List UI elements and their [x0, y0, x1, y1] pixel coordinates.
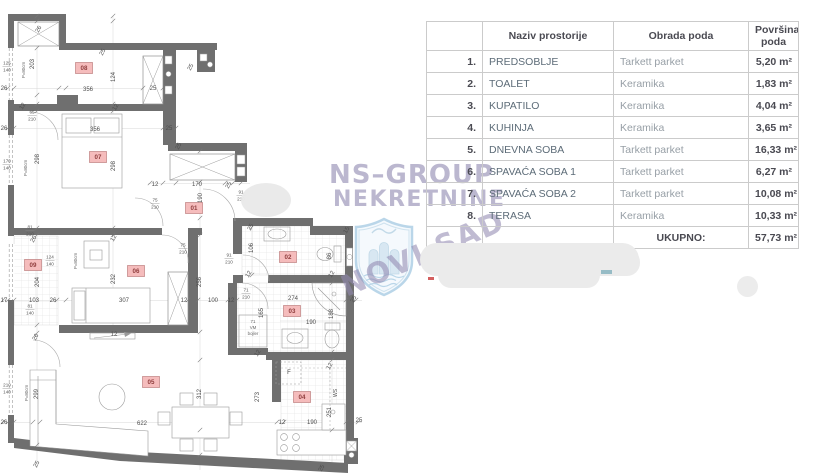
dimension-label: 190	[307, 420, 318, 426]
door-size-numerator: 81	[27, 225, 33, 230]
dimension-label: 203	[30, 58, 36, 69]
floor-finish: Keramika	[614, 95, 749, 117]
col-header-name: Naziv prostorije	[483, 22, 614, 51]
dimension-label: 298	[35, 153, 41, 164]
floor-finish: Tarkett parket	[614, 161, 749, 183]
table-row: 5.DNEVNA SOBATarkett parket16,33 m²	[427, 139, 799, 161]
dimension-label: 190	[198, 192, 204, 203]
redacted-text-fragment	[428, 277, 434, 280]
floor-finish: Tarkett parket	[614, 51, 749, 73]
dimension-label: 170	[192, 182, 203, 188]
dimension-label: 188	[329, 308, 335, 319]
room-name: SPAVAĆA SOBA 1	[483, 161, 614, 183]
room-number-text: 04	[299, 394, 306, 401]
dimension-label: 26	[1, 126, 8, 132]
door-size-denominator: 140	[3, 166, 11, 171]
floor-finish: Keramika	[614, 117, 749, 139]
row-index: 5.	[427, 139, 483, 161]
real-estate-listing: 2620326356124252512122635625298298252512…	[0, 0, 813, 476]
dimension-label: 165	[259, 307, 265, 318]
room-name: DNEVNA SOBA	[483, 139, 614, 161]
dimension-label: 25	[150, 86, 157, 92]
dimension-label: 17	[1, 298, 8, 304]
annotation-label: P=80cm	[23, 160, 28, 177]
dimension-label: 26	[1, 86, 8, 92]
dimension-label: 100	[208, 298, 219, 304]
door-size-numerator: 75	[152, 198, 158, 203]
dimension-label: 12	[111, 332, 118, 338]
door-size-denominator: 140	[3, 390, 11, 395]
room-area: 6,27 m²	[749, 161, 799, 183]
door-size-numerator: 210	[3, 383, 11, 388]
dimension-label: 273	[255, 391, 261, 402]
annotation-label: bojler	[248, 331, 259, 336]
door-size-denominator: 140	[26, 311, 34, 316]
col-header-area-line1: Površina	[755, 24, 799, 36]
dimension-label: 25	[33, 460, 42, 469]
table-row: 4.KUHINJAKeramika3,65 m²	[427, 117, 799, 139]
dimension-label: 26	[1, 420, 8, 426]
door-size-denominator: 210	[28, 117, 36, 122]
dimension-label: 124	[111, 71, 117, 82]
dimension-label: WS	[333, 388, 339, 397]
door-size-denominator: 140	[46, 262, 54, 267]
room-number-text: 06	[133, 268, 140, 275]
door-size-numerator: 71	[243, 288, 249, 293]
row-index: 6.	[427, 161, 483, 183]
room-number-text: 08	[81, 65, 88, 72]
room-area: 10,08 m²	[749, 183, 799, 205]
door-size-numerator: 125	[3, 61, 11, 66]
room-number-text: 03	[289, 308, 296, 315]
door-size-numerator: 81	[27, 304, 33, 309]
dimension-label: 12	[152, 182, 159, 188]
row-index: 4.	[427, 117, 483, 139]
dimension-label: 25	[356, 418, 363, 424]
room-area: 3,65 m²	[749, 117, 799, 139]
door-size-denominator: 210	[151, 205, 159, 210]
table-row: 2.TOALETKeramika1,83 m²	[427, 73, 799, 95]
col-header-floor: Obrada poda	[614, 22, 749, 51]
dimension-label: 307	[119, 298, 130, 304]
annotation-label: P=80cm	[21, 62, 26, 79]
rooms-table: Naziv prostorije Obrada poda Površinapod…	[426, 21, 799, 249]
room-name: KUHINJA	[483, 117, 614, 139]
door-size-denominator: 210	[179, 250, 187, 255]
redaction-blob	[241, 183, 291, 217]
dimension-label: 622	[137, 421, 148, 427]
dimension-label: 312	[197, 388, 203, 399]
dimension-label: 12	[181, 298, 188, 304]
room-number-text: 01	[191, 205, 198, 212]
room-number-text: 09	[30, 262, 37, 269]
room-name: PREDSOBLJE	[483, 51, 614, 73]
room-name: KUPATILO	[483, 95, 614, 117]
floor-finish: Tarkett parket	[614, 139, 749, 161]
floor-finish: Keramika	[614, 73, 749, 95]
room-area: 1,83 m²	[749, 73, 799, 95]
total-label: UKUPNO:	[614, 227, 749, 249]
dimension-label: 25	[187, 63, 196, 72]
dimension-label: 106	[249, 242, 255, 253]
room-number-text: 05	[148, 379, 155, 386]
row-index: 1.	[427, 51, 483, 73]
redaction-blob	[438, 261, 600, 288]
dimension-label: 12	[279, 420, 286, 426]
room-name: SPAVAĆA SOBA 2	[483, 183, 614, 205]
row-index: 2.	[427, 73, 483, 95]
dimension-label: 256	[197, 276, 203, 287]
agency-shield-logo	[352, 216, 416, 298]
room-area: 5,20 m²	[749, 51, 799, 73]
annotation-label: P=80cm	[24, 385, 29, 402]
total-area: 57,73 m²	[749, 227, 799, 249]
row-index: 7.	[427, 183, 483, 205]
table-row: 7.SPAVAĆA SOBA 2Tarkett parket10,08 m²	[427, 183, 799, 205]
dimension-label: 232	[111, 273, 117, 284]
dimension-label: 298	[111, 160, 117, 171]
dimension-label: 25	[166, 126, 173, 132]
dimension-label: 356	[90, 127, 101, 133]
dimension-label: 26	[50, 298, 57, 304]
door-size-numerator: 65	[29, 110, 35, 115]
dimension-label: 204	[35, 276, 41, 287]
annotation-label: P=80cm	[73, 253, 78, 270]
door-size-denominator: 210	[242, 295, 250, 300]
door-size-denominator: 140	[3, 68, 11, 73]
table-row: 8.TERASAKeramika10,33 m²	[427, 205, 799, 227]
table-row: 3.KUPATILOKeramika4,04 m²	[427, 95, 799, 117]
table-row: 1.PREDSOBLJETarkett parket5,20 m²	[427, 51, 799, 73]
room-number-text: 07	[95, 154, 102, 161]
row-index: 8.	[427, 205, 483, 227]
col-header-area-line2: poda	[761, 36, 786, 48]
dimension-label: 12	[228, 298, 235, 304]
room-table-panel: Naziv prostorije Obrada poda Površinapod…	[426, 21, 798, 249]
dimension-label: 274	[288, 296, 299, 302]
annotation-label: 71	[251, 319, 256, 324]
door-size-denominator: 210	[225, 260, 233, 265]
room-number-text: 02	[285, 254, 292, 261]
dimension-label: 299	[34, 388, 40, 399]
redaction-blob-circle	[737, 276, 758, 297]
floor-plan: 2620326356124252512122635625298298252512…	[0, 0, 420, 476]
annotation-label: VM	[250, 325, 257, 330]
dimension-label: 86	[327, 252, 333, 259]
col-header-index	[427, 22, 483, 51]
door-size-numerator: 91	[226, 253, 232, 258]
floor-finish: Keramika	[614, 205, 749, 227]
table-header-row: Naziv prostorije Obrada poda Površinapod…	[427, 22, 799, 51]
col-header-area: Površinapoda	[749, 22, 799, 51]
table-row: 6.SPAVAĆA SOBA 1Tarkett parket6,27 m²	[427, 161, 799, 183]
door-size-numerator: 170	[3, 159, 11, 164]
room-area: 10,33 m²	[749, 205, 799, 227]
floor-finish: Tarkett parket	[614, 183, 749, 205]
dimension-label: 190	[306, 320, 317, 326]
door-size-numerator: 75	[180, 243, 186, 248]
redacted-text-fragment	[601, 270, 612, 274]
dimension-label: 356	[83, 87, 94, 93]
row-index: 3.	[427, 95, 483, 117]
room-area: 4,04 m²	[749, 95, 799, 117]
room-name: TOALET	[483, 73, 614, 95]
door-size-denominator: 210	[26, 232, 34, 237]
dimension-label: 251	[327, 406, 333, 417]
room-area: 16,33 m²	[749, 139, 799, 161]
dimension-label: F	[287, 370, 291, 376]
room-name: TERASA	[483, 205, 614, 227]
door-size-numerator: 124	[46, 255, 54, 260]
